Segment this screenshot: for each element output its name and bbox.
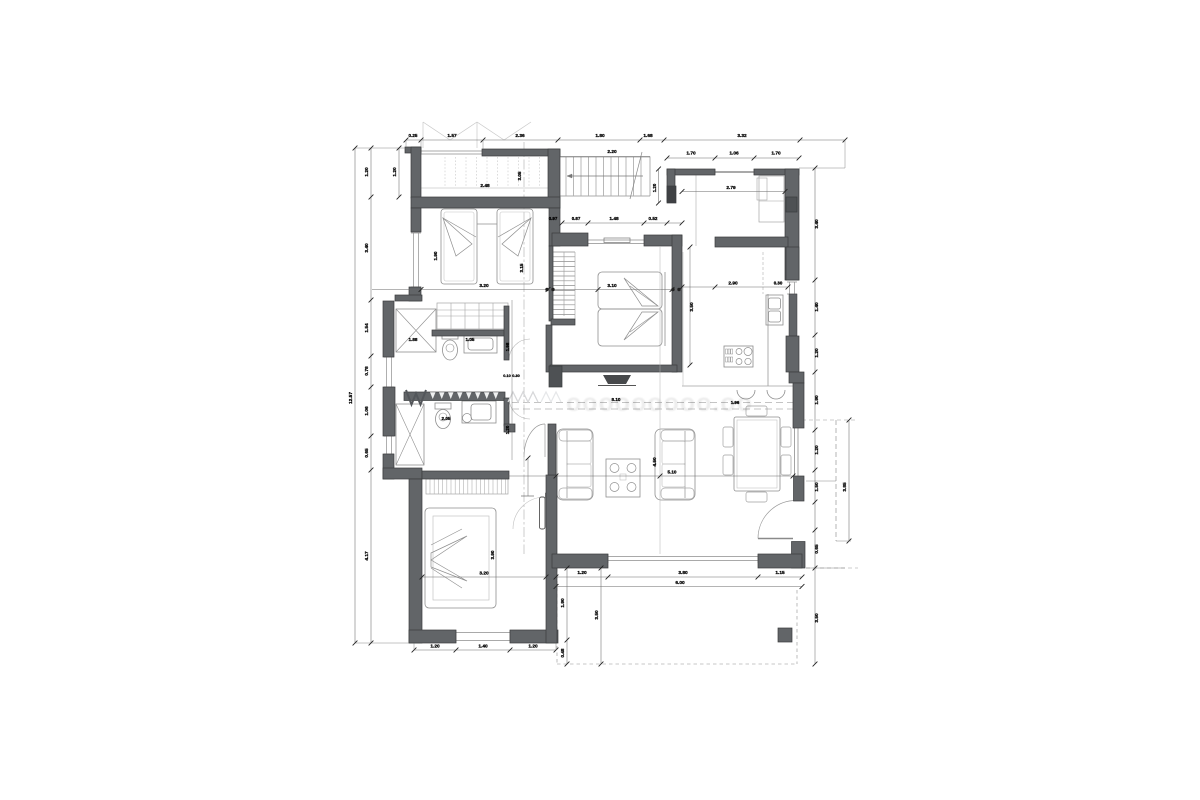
svg-text:0.78: 0.78 <box>364 366 370 376</box>
svg-text:1.15: 1.15 <box>775 570 785 576</box>
svg-text:1.40: 1.40 <box>478 644 488 650</box>
svg-text:ooooooooo.oo: ooooooooo.oo <box>566 389 753 417</box>
svg-text:1.48: 1.48 <box>609 216 619 222</box>
svg-text:2.20: 2.20 <box>607 149 617 155</box>
svg-text:1.88: 1.88 <box>409 337 418 342</box>
svg-text:0.87: 0.87 <box>572 216 581 221</box>
svg-text:1.68: 1.68 <box>643 133 653 139</box>
svg-text:1.96: 1.96 <box>731 400 740 405</box>
svg-text:1.20: 1.20 <box>652 183 657 192</box>
svg-text:4.17: 4.17 <box>364 551 370 561</box>
svg-text:1.20: 1.20 <box>814 348 820 358</box>
svg-text:0.30: 0.30 <box>774 281 783 286</box>
svg-text:0.10: 0.10 <box>503 374 510 378</box>
svg-text:2.48: 2.48 <box>480 183 490 189</box>
svg-text:1.05: 1.05 <box>466 337 475 342</box>
svg-text:5.10: 5.10 <box>668 470 677 475</box>
svg-text:0.30: 0.30 <box>512 374 519 378</box>
svg-text:2.36: 2.36 <box>515 133 525 139</box>
svg-text:1.06: 1.06 <box>364 406 370 416</box>
svg-text:1.90: 1.90 <box>433 251 438 260</box>
svg-text:6.00: 6.00 <box>675 580 685 586</box>
svg-text:3.90: 3.90 <box>490 550 495 559</box>
svg-text:3.05: 3.05 <box>517 171 522 180</box>
svg-text:2.79: 2.79 <box>726 185 736 191</box>
svg-text:3.50: 3.50 <box>689 302 695 312</box>
svg-text:2.05: 2.05 <box>442 416 451 421</box>
svg-text:3.50: 3.50 <box>594 610 600 620</box>
svg-text:1.70: 1.70 <box>771 151 781 157</box>
svg-text:2.90: 2.90 <box>728 281 738 287</box>
svg-text:1.20: 1.20 <box>577 570 587 576</box>
svg-text:0.65: 0.65 <box>364 448 370 458</box>
svg-text:1.54: 1.54 <box>364 323 370 333</box>
svg-text:3.20: 3.20 <box>479 571 489 577</box>
svg-text:3.10: 3.10 <box>607 283 617 289</box>
svg-text:1.20: 1.20 <box>528 644 538 650</box>
svg-text:1.20: 1.20 <box>364 167 370 177</box>
svg-text:0.65: 0.65 <box>814 544 820 554</box>
svg-text:4.50: 4.50 <box>652 457 658 467</box>
svg-text:3.15: 3.15 <box>519 263 524 272</box>
svg-text:0.25: 0.25 <box>409 133 418 138</box>
svg-text:1.20: 1.20 <box>430 644 440 650</box>
svg-text:1.40: 1.40 <box>814 302 820 312</box>
svg-text:12.57: 12.57 <box>348 392 354 404</box>
svg-text:1.50: 1.50 <box>814 482 820 492</box>
svg-text:0.97: 0.97 <box>549 216 558 221</box>
svg-text:1.80: 1.80 <box>595 133 605 139</box>
svg-text:1.20: 1.20 <box>814 445 820 455</box>
svg-text:3.40: 3.40 <box>814 219 820 229</box>
svg-text:8.10: 8.10 <box>612 397 621 402</box>
svg-text:1.90: 1.90 <box>814 395 820 405</box>
svg-text:1.70: 1.70 <box>686 151 696 157</box>
svg-text:3.50: 3.50 <box>814 613 820 623</box>
svg-text:1.90: 1.90 <box>560 598 566 608</box>
svg-text:0.48: 0.48 <box>560 648 565 657</box>
svg-text:3.40: 3.40 <box>364 243 370 253</box>
svg-text:1.20: 1.20 <box>392 167 398 177</box>
svg-text:3.20: 3.20 <box>479 283 489 289</box>
svg-text:1.57: 1.57 <box>447 133 457 139</box>
svg-text:1.20: 1.20 <box>505 425 510 434</box>
svg-text:3.80: 3.80 <box>678 570 688 576</box>
svg-text:1.98: 1.98 <box>505 342 510 351</box>
svg-text:3.85: 3.85 <box>842 482 848 492</box>
svg-text:0.52: 0.52 <box>649 216 658 221</box>
svg-text:3.32: 3.32 <box>737 133 747 139</box>
svg-text:1.06: 1.06 <box>729 151 739 157</box>
